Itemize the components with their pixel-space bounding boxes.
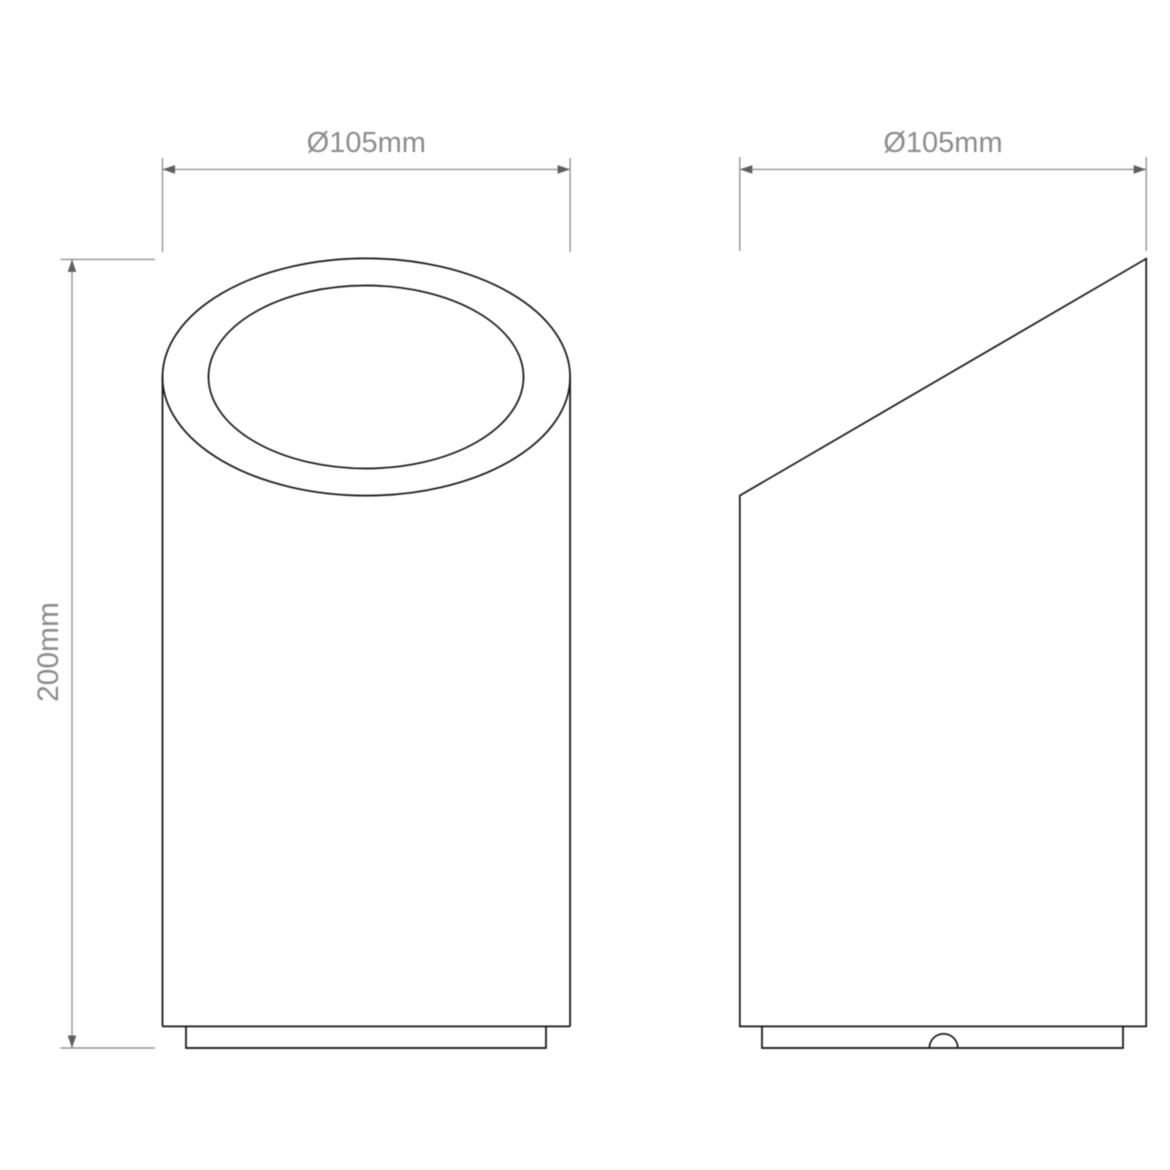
svg-text:Ø105mm: Ø105mm [883,127,1002,159]
svg-text:200mm: 200mm [32,602,65,702]
svg-text:Ø105mm: Ø105mm [307,127,426,159]
